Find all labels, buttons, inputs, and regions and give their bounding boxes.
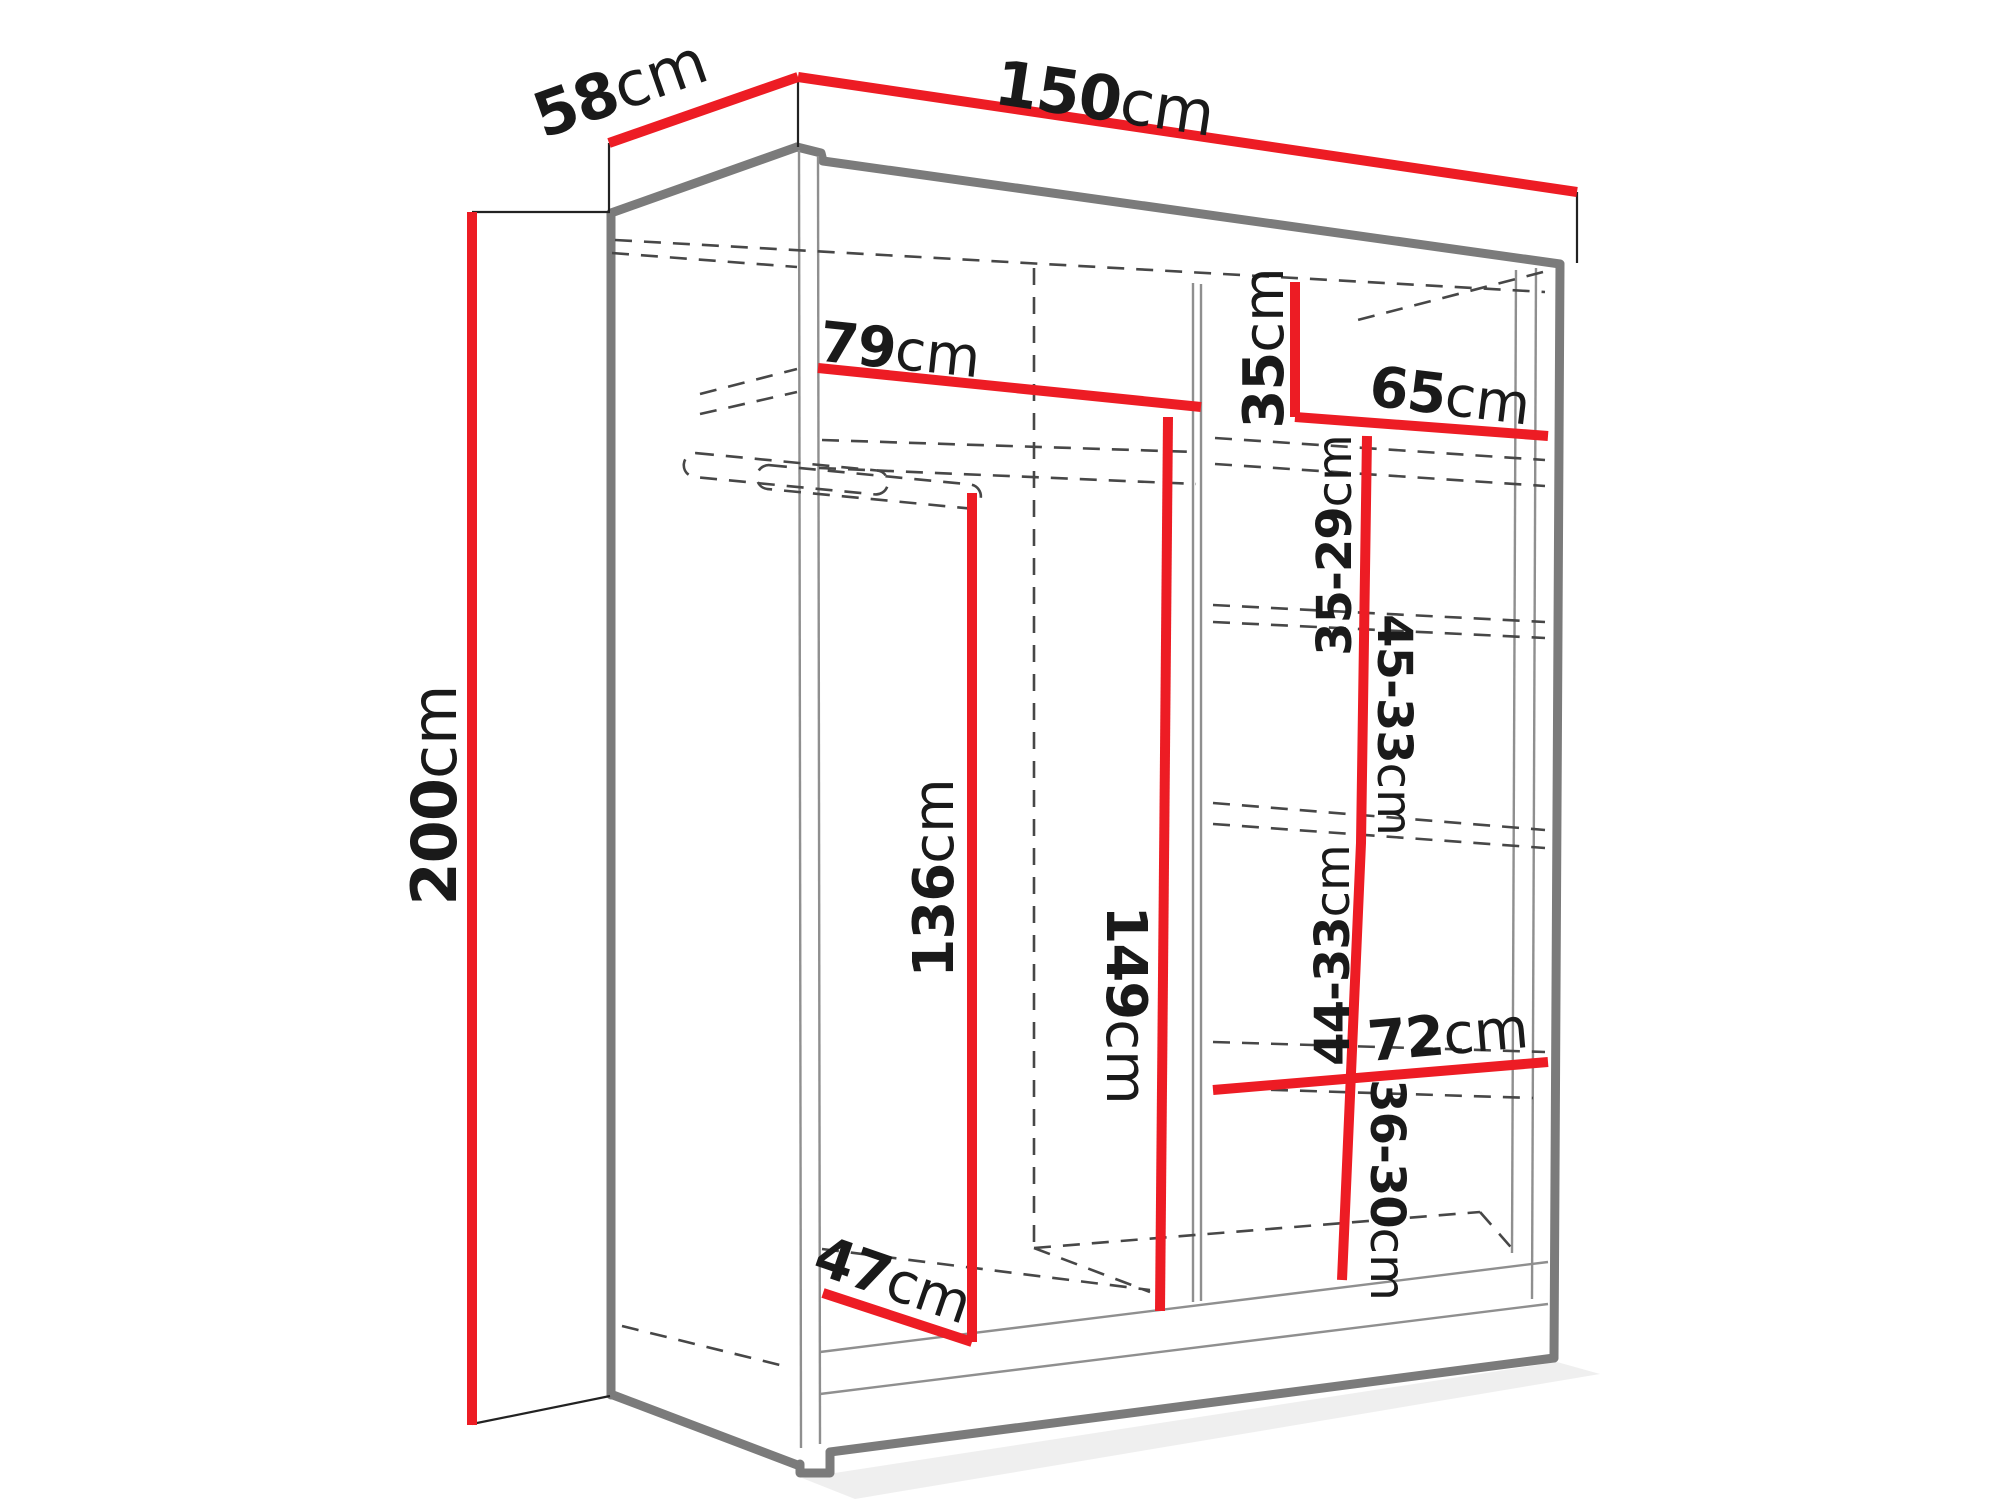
dim-label-width: 150cm [990,46,1219,151]
floor-right-edge [1480,1212,1516,1253]
right-inner-wall-2 [1532,268,1536,1299]
right-shelf-1-front [1215,464,1545,486]
right-shelf-1-back [1215,438,1545,460]
dim-label-shelf-gap-2: 45-33cm [1366,614,1422,836]
dim-line-middle-height-149 [1160,417,1168,1311]
bottom-left-foot [800,1452,830,1473]
interior-ceiling-edge-2 [612,253,797,267]
dim-label-left-section-width: 79cm [816,309,983,391]
dim-label-top-shelf-height: 35cm [1232,267,1297,428]
dim-label-depth: 58cm [524,24,717,152]
dim-label-shelf-gap-4: 36-30cm [1359,1079,1415,1301]
side-panel-hidden-edge-2 [700,392,797,414]
side-bottom-edge [613,1395,800,1466]
wardrobe-dimension-diagram: 58cm 150cm 200cm 79cm 35cm 65cm 35-29cm … [0,0,2000,1500]
side-panel-bottom-hidden-edge [622,1326,788,1367]
top-front-edge [797,147,1560,264]
dim-label-left-section-height: 136cm [902,778,967,977]
dim-label-middle-section-height: 149cm [1094,905,1159,1104]
interior-ceiling-back-edge [615,240,1545,292]
floor-left-edge [1034,1248,1150,1292]
diagram-canvas: 58cm 150cm 200cm 79cm 35cm 65cm 35-29cm … [0,0,2000,1500]
left-top-shelf-back [822,440,1196,452]
right-edge [1554,264,1560,1358]
side-panel-hidden-edge-1 [700,369,797,394]
side-top-edge [611,147,797,213]
height-witness-bottom [472,1396,610,1424]
dim-label-height: 200cm [398,685,471,906]
dim-label-shelf-gap-3: 44-33cm [1305,844,1361,1066]
right-top-corner-edge [1350,272,1543,322]
door-left-edge-outer [799,150,801,1448]
dim-label-shelf-gap-1: 35-29cm [1307,434,1363,656]
